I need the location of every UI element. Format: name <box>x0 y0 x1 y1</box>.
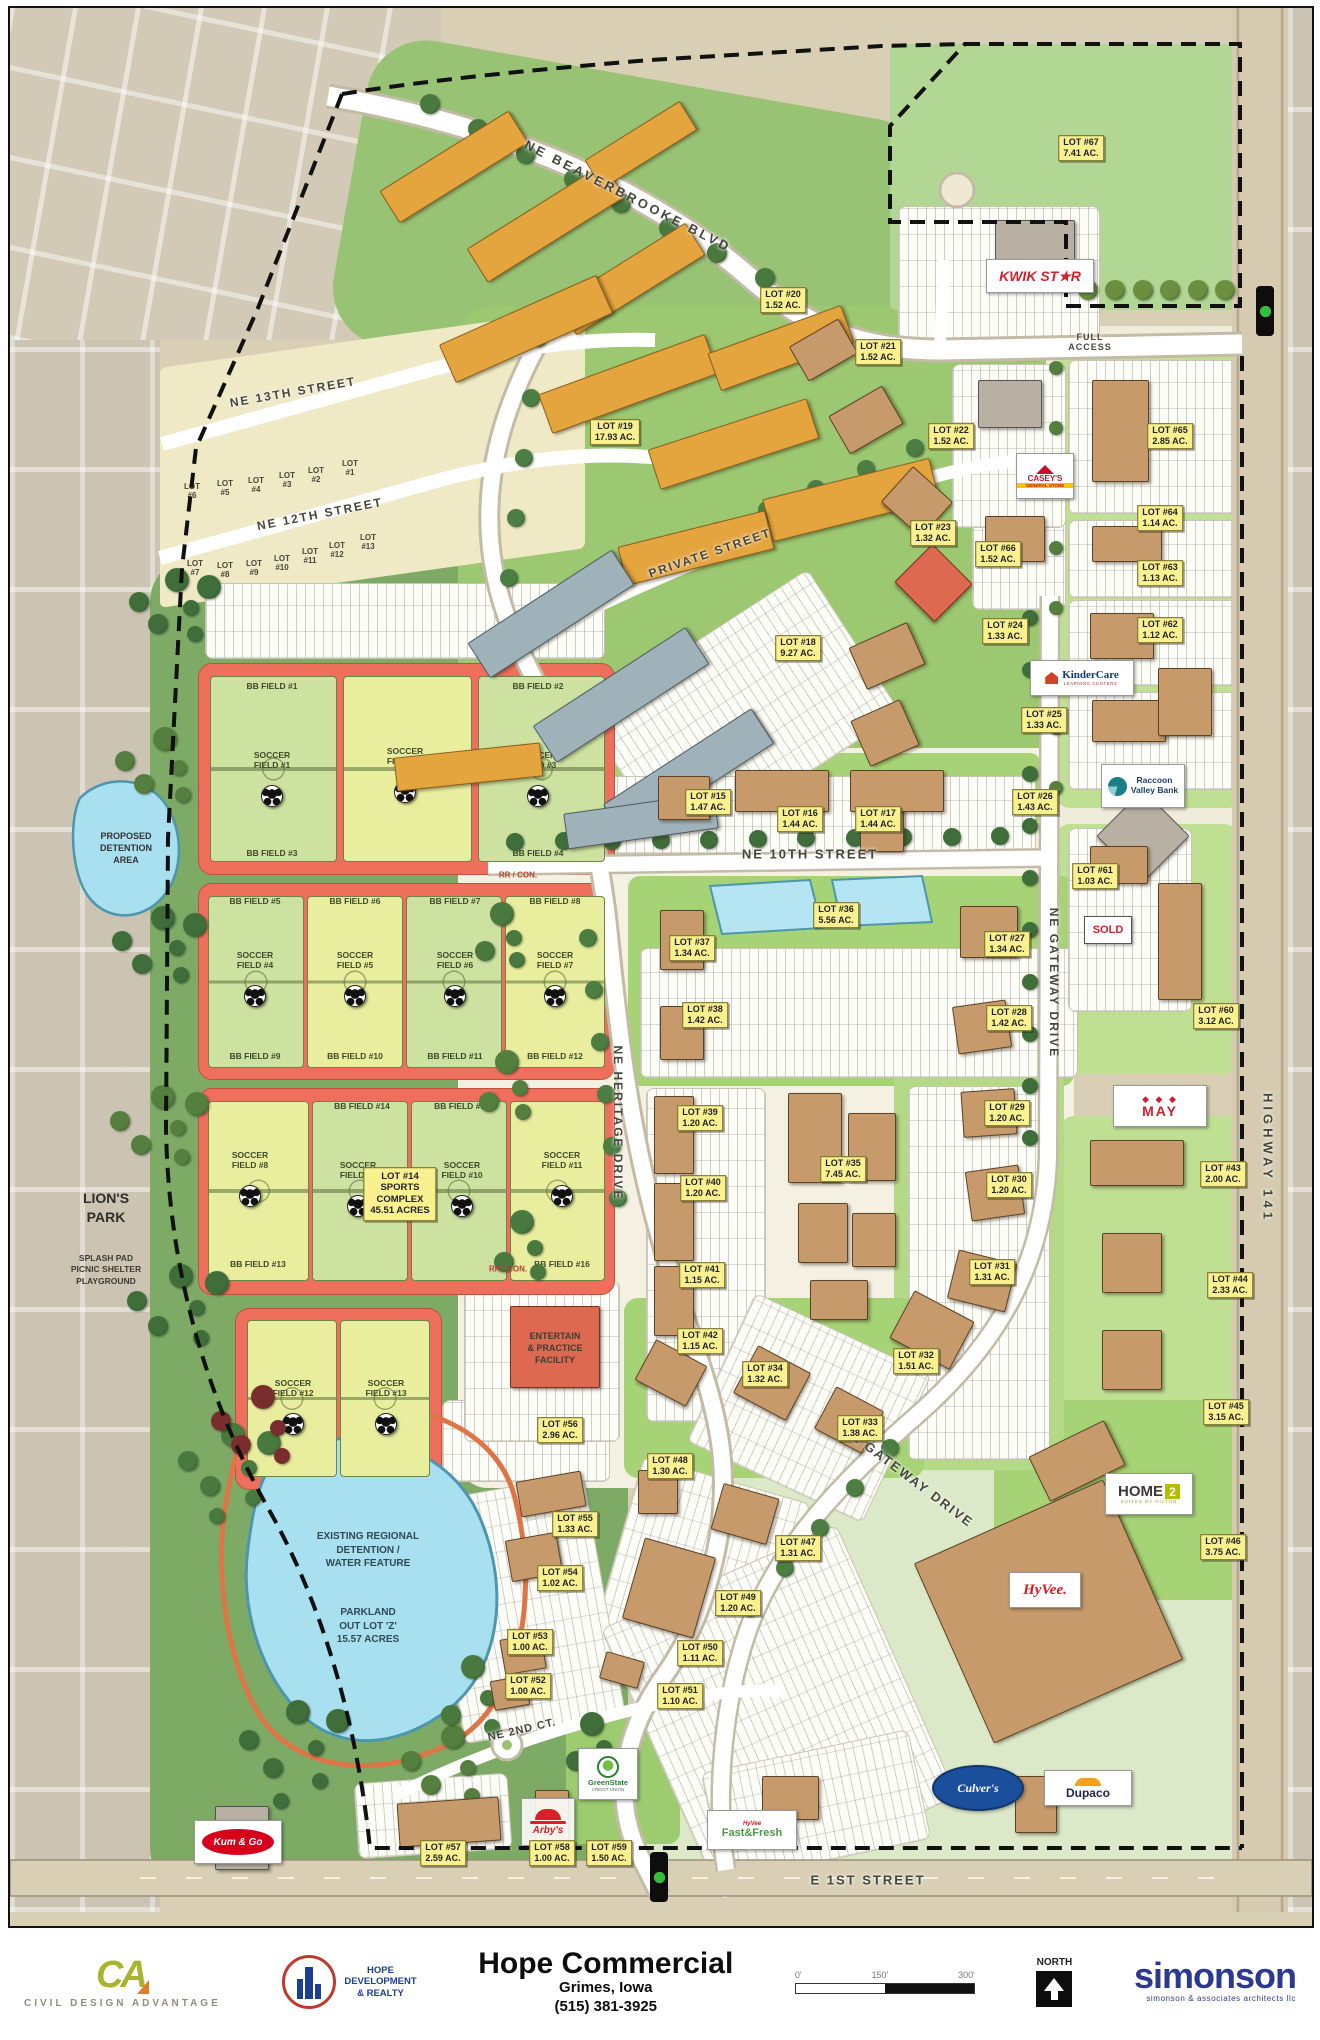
dupaco-logo: Dupaco <box>1044 1770 1132 1806</box>
kwik-star-logo: KWIK ST★R <box>986 259 1094 293</box>
lot-tag-48: LOT #48 1.30 AC. <box>647 1453 693 1479</box>
cda-notch-icon <box>137 1980 149 1994</box>
lot-tag-36: LOT #36 5.56 AC. <box>813 902 859 928</box>
lot-tag-23: LOT #23 1.32 AC. <box>910 520 956 546</box>
lot-tag-17: LOT #17 1.44 AC. <box>855 806 901 832</box>
lot-tag-46: LOT #46 3.75 AC. <box>1200 1534 1246 1560</box>
hyvee-fast-and-fresh-logo: HyVee Fast&Fresh <box>707 1810 797 1850</box>
hope-development-logo: HOPE DEVELOPMENT & REALTY <box>282 1955 416 2009</box>
project-title-group: Hope Commercial Grimes, Iowa (515) 381-3… <box>478 1948 733 2017</box>
lot-tag-67: LOT #67 7.41 AC. <box>1058 135 1104 161</box>
traffic-signal-icon <box>1256 286 1274 336</box>
lot-tag-27: LOT #27 1.34 AC. <box>984 931 1030 957</box>
simonson-logo: simonson simonson & associates architect… <box>1134 1961 1296 2004</box>
scale-bar: 0' 150' 300' <box>795 1970 975 1994</box>
lot-tag-31: LOT #31 1.31 AC. <box>969 1259 1015 1285</box>
north-arrow: NORTH <box>1036 1957 1072 2007</box>
lot-tag-24: LOT #24 1.33 AC. <box>982 618 1028 644</box>
lot-tag-18: LOT #18 9.27 AC. <box>775 635 821 661</box>
lot-tag-55: LOT #55 1.33 AC. <box>552 1511 598 1537</box>
kindercare-logo: KinderCare LEARNING CENTERS <box>1030 660 1134 696</box>
lot-tag-66: LOT #66 1.52 AC. <box>975 541 1021 567</box>
hope-buildings-icon <box>282 1955 336 2009</box>
lot-tag-49: LOT #49 1.20 AC. <box>715 1590 761 1616</box>
lot-tag-54: LOT #54 1.02 AC. <box>537 1565 583 1591</box>
lot-tag-64: LOT #64 1.14 AC. <box>1137 505 1183 531</box>
caseys-roof-icon <box>1036 465 1054 474</box>
site-plan-page: BB FIELD #1BB FIELD #2BB FIELD #3BB FIEL… <box>0 0 1320 2040</box>
lot-tag-25: LOT #25 1.33 AC. <box>1021 707 1067 733</box>
north-label: NORTH <box>1037 1957 1073 1968</box>
culvers-logo: Culver's <box>932 1765 1024 1811</box>
lot-tag-37: LOT #37 1.34 AC. <box>669 935 715 961</box>
title-block: CA CIVIL DESIGN ADVANTAGE HOPE DEVELOPME… <box>8 1930 1312 2034</box>
kum-and-go-logo: Kum & Go <box>194 1820 282 1864</box>
traffic-signal-icon <box>650 1852 668 1902</box>
lot-tag-60: LOT #60 3.12 AC. <box>1193 1003 1239 1029</box>
simonson-sub: simonson & associates architects llc <box>1146 1994 1296 2003</box>
hyvee-logo: HyVee. <box>1009 1572 1081 1608</box>
lot-tag-26: LOT #26 1.43 AC. <box>1012 789 1058 815</box>
dupaco-arc-icon <box>1075 1778 1101 1786</box>
project-title: Hope Commercial <box>478 1948 733 1980</box>
lot-tag-28: LOT #28 1.42 AC. <box>986 1005 1032 1031</box>
lot-tag-32: LOT #32 1.51 AC. <box>893 1348 939 1374</box>
simonson-name: simonson <box>1134 1961 1296 1992</box>
lot-tag-40: LOT #40 1.20 AC. <box>680 1175 726 1201</box>
lot-tag-19: LOT #19 17.93 AC. <box>590 419 640 445</box>
lot-tag-41: LOT #41 1.15 AC. <box>679 1262 725 1288</box>
lot-tag-42: LOT #42 1.15 AC. <box>677 1328 723 1354</box>
north-arrow-icon <box>1036 1971 1072 2007</box>
lot-tag-63: LOT #63 1.13 AC. <box>1137 560 1183 586</box>
lot-tag-22: LOT #22 1.52 AC. <box>928 423 974 449</box>
lot-tag-59: LOT #59 1.50 AC. <box>586 1840 632 1866</box>
lot-tag-45: LOT #45 3.15 AC. <box>1203 1399 1249 1425</box>
lot-tag-29: LOT #29 1.20 AC. <box>984 1100 1030 1126</box>
scale-tick-0: 0' <box>795 1970 802 1980</box>
civil-design-advantage-logo: CA CIVIL DESIGN ADVANTAGE <box>24 1956 221 2009</box>
site-plan-map: BB FIELD #1BB FIELD #2BB FIELD #3BB FIEL… <box>8 6 1314 1928</box>
lot-tag-65: LOT #65 2.85 AC. <box>1147 423 1193 449</box>
lot-tag-20: LOT #20 1.52 AC. <box>760 287 806 313</box>
lot-tag-62: LOT #62 1.12 AC. <box>1137 617 1183 643</box>
arbys-logo: Arby's <box>521 1798 575 1846</box>
kindercare-house-icon <box>1045 672 1058 684</box>
lot-tag-14: LOT #14 SPORTS COMPLEX 45.51 ACRES <box>363 1167 436 1221</box>
sold-sign: SOLD <box>1084 916 1132 944</box>
hope-name: HOPE DEVELOPMENT & REALTY <box>344 1965 416 1999</box>
caseys-logo: CASEY'S GENERAL STORE <box>1016 453 1074 499</box>
lot-tag-56: LOT #56 2.96 AC. <box>537 1417 583 1443</box>
scale-tick-300: 300' <box>958 1970 975 1980</box>
lot-tag-50: LOT #50 1.11 AC. <box>677 1640 723 1666</box>
lot-tag-47: LOT #47 1.31 AC. <box>775 1535 821 1561</box>
arbys-hat-icon <box>535 1809 561 1820</box>
lot-tag-43: LOT #43 2.00 AC. <box>1200 1161 1246 1187</box>
lot-tag-30: LOT #30 1.20 AC. <box>986 1172 1032 1198</box>
lot-tag-58: LOT #58 1.00 AC. <box>529 1840 575 1866</box>
lot-tag-15: LOT #15 1.47 AC. <box>685 789 731 815</box>
lot-tag-33: LOT #33 1.38 AC. <box>837 1415 883 1441</box>
earl-may-logo: ◆ ◆ ◆ MAY <box>1113 1085 1207 1127</box>
lot-tag-39: LOT #39 1.20 AC. <box>677 1105 723 1131</box>
raccoon-valley-bank-logo: Raccoon Valley Bank <box>1101 764 1185 808</box>
lot-tag-61: LOT #61 1.03 AC. <box>1072 863 1118 889</box>
greenstate-logo: GreenState CREDIT UNION <box>578 1748 638 1800</box>
lot-tag-53: LOT #53 1.00 AC. <box>507 1629 553 1655</box>
lot-tag-57: LOT #57 2.59 AC. <box>420 1840 466 1866</box>
greenstate-tree-icon <box>597 1756 619 1778</box>
project-city: Grimes, Iowa <box>559 1979 652 1998</box>
raccoon-swoosh-icon <box>1108 777 1127 796</box>
development-boundary <box>10 8 1312 1926</box>
home2-logo: HOME 2 SUITES BY HILTON <box>1105 1473 1193 1515</box>
cda-name: CIVIL DESIGN ADVANTAGE <box>24 1998 221 2009</box>
scale-tick-150: 150' <box>871 1970 888 1980</box>
project-phone: (515) 381-3925 <box>554 1998 657 2017</box>
lot-tag-44: LOT #44 2.33 AC. <box>1207 1272 1253 1298</box>
lot-tag-52: LOT #52 1.00 AC. <box>505 1673 551 1699</box>
lot-tag-35: LOT #35 7.45 AC. <box>820 1156 866 1182</box>
lot-tag-38: LOT #38 1.42 AC. <box>682 1002 728 1028</box>
lot-tag-51: LOT #51 1.10 AC. <box>657 1683 703 1709</box>
lot-tag-34: LOT #34 1.32 AC. <box>742 1361 788 1387</box>
lot-tag-16: LOT #16 1.44 AC. <box>777 806 823 832</box>
lot-tag-21: LOT #21 1.52 AC. <box>855 339 901 365</box>
